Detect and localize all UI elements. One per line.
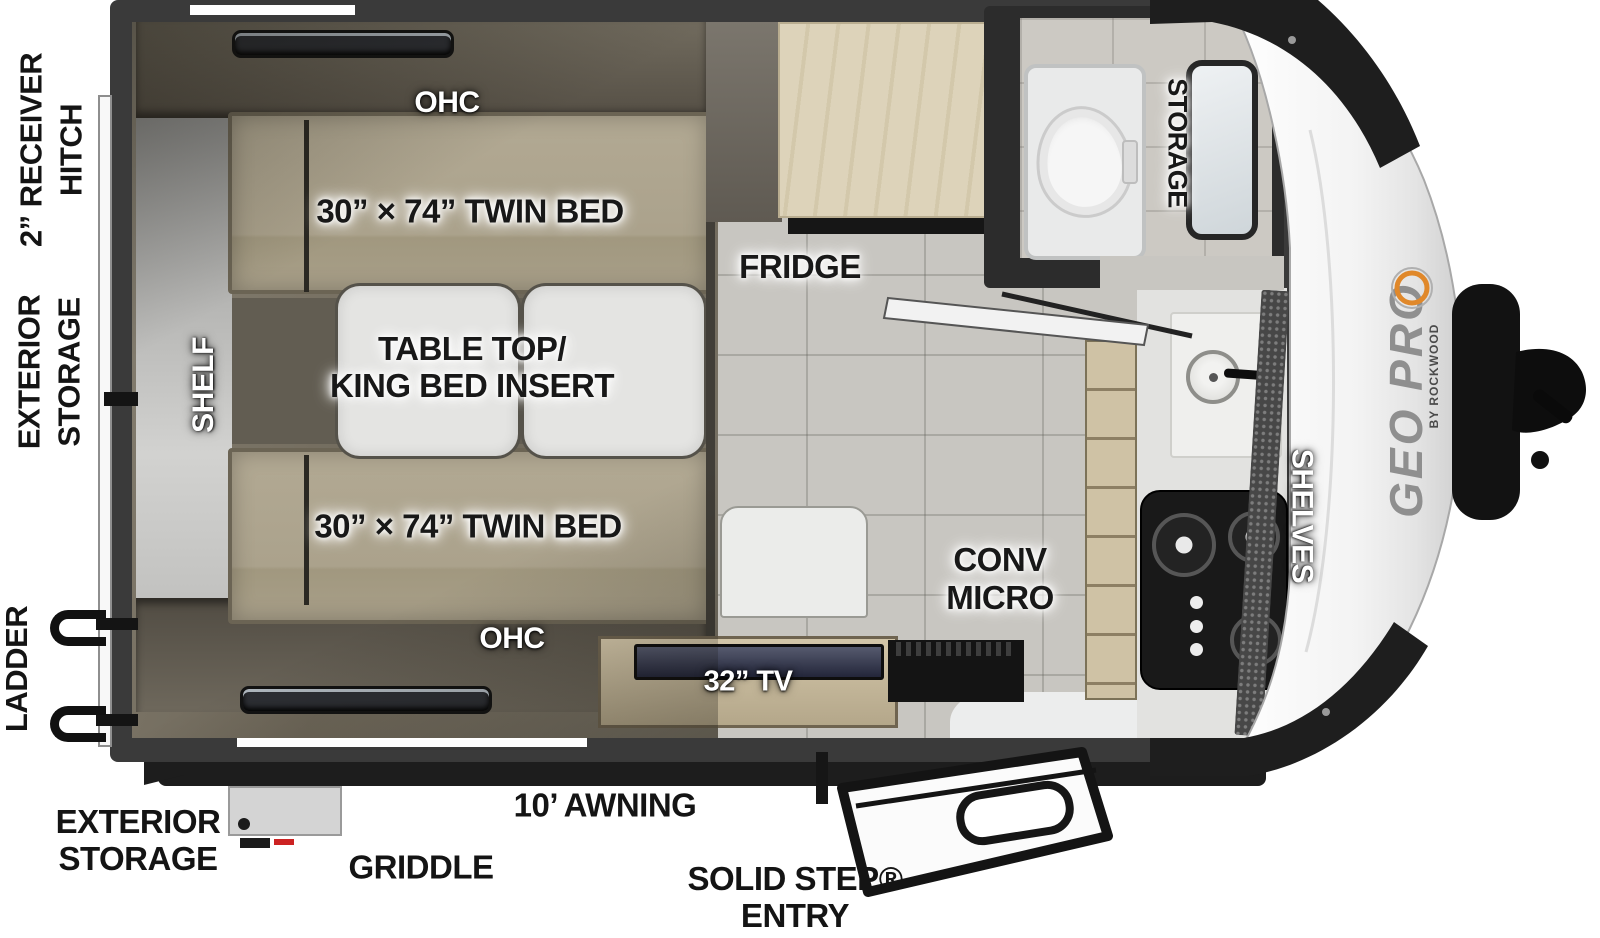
bathroom-doorway <box>1100 256 1284 290</box>
label-table-line1: TABLE TOP/ <box>330 331 614 368</box>
label-conv-micro: CONV MICRO <box>946 541 1054 617</box>
step-handle-slot <box>957 782 1073 845</box>
logo-orange-ring <box>1397 273 1427 303</box>
hitch-assembly <box>1452 284 1586 520</box>
cabinet-side-panel <box>706 22 782 222</box>
label-receiver-hitch: 2” RECEIVER HITCH <box>12 53 93 247</box>
cooktop-knob <box>1190 596 1203 609</box>
label-twin-bed-bottom: 30” × 74” TWIN BED <box>314 509 621 546</box>
logo-subtext: BY ROCKWOOD <box>1427 324 1441 429</box>
label-solid-step-entry: SOLID STEP® ENTRY <box>687 861 902 935</box>
label-bottom-storage-line2: STORAGE <box>56 841 221 878</box>
label-hitch-line2: HITCH <box>52 53 92 247</box>
geo-pro-logo: GEO PRO BY ROCKWOOD <box>1380 268 1441 518</box>
label-twin-bed-top: 30” × 74” TWIN BED <box>316 194 623 231</box>
roof-vent-icon <box>240 686 492 714</box>
label-table-line2: KING BED INSERT <box>330 368 614 405</box>
label-hitch-line1: 2” RECEIVER <box>12 53 52 247</box>
ladder-bracket <box>104 392 138 406</box>
griddle-mount <box>240 838 270 848</box>
front-storage-door <box>1186 60 1258 240</box>
griddle-igniter <box>274 839 294 845</box>
label-ohc-bottom: OHC <box>479 622 544 657</box>
logo-outer-ring <box>1392 268 1432 308</box>
toilet-hinge <box>1122 140 1138 184</box>
label-griddle: GRIDDLE <box>349 850 494 887</box>
griddle-knob <box>238 818 250 830</box>
stowed-table <box>720 506 868 618</box>
top-wall-window <box>190 5 355 15</box>
label-conv-line1: CONV <box>946 541 1054 579</box>
label-shelf: SHELF <box>187 337 222 433</box>
nose-screw <box>1288 36 1296 44</box>
ladder-hook-icon <box>50 610 106 646</box>
label-bottom-storage-line1: EXTERIOR <box>56 804 221 841</box>
ladder-hook-icon <box>50 706 106 742</box>
fridge-vent-slot <box>788 218 992 234</box>
label-exterior-storage-side: EXTERIOR STORAGE <box>10 295 91 449</box>
ladder-rail <box>98 95 112 747</box>
cooktop-knob <box>1190 643 1203 656</box>
table-post <box>304 120 309 292</box>
fridge-cabinet <box>778 22 990 218</box>
label-front-storage: STORAGE <box>1161 78 1192 208</box>
rv-floorplan-canvas: GEO PRO BY ROCKWOOD OHC 30” × 74” TWIN B… <box>0 0 1600 938</box>
nose-screw <box>1322 708 1330 716</box>
sink-drain <box>1209 373 1218 382</box>
label-entry-line2: ENTRY <box>687 898 902 935</box>
burner-icon <box>1152 513 1216 577</box>
label-awning: 10’ AWNING <box>514 788 697 825</box>
label-ext-storage-line1: EXTERIOR <box>10 295 50 449</box>
label-ladder: LADDER <box>0 606 37 732</box>
kitchen-base-cabinet <box>1085 340 1137 700</box>
roof-vent-icon <box>232 30 454 58</box>
furnace-fins <box>896 642 1016 656</box>
cooktop-knob <box>1190 620 1203 633</box>
table-post <box>304 455 309 605</box>
label-ext-storage-line2: STORAGE <box>50 295 90 449</box>
label-table-king: TABLE TOP/ KING BED INSERT <box>330 331 614 405</box>
label-tv: 32” TV <box>704 665 793 698</box>
label-fridge: FRIDGE <box>739 248 861 286</box>
label-conv-line2: MICRO <box>946 579 1054 617</box>
label-shelves: SHELVES <box>1284 449 1319 583</box>
label-ohc-top: OHC <box>414 86 479 121</box>
label-entry-line1: SOLID STEP® <box>687 861 902 898</box>
logo-text: GEO PRO <box>1380 282 1432 518</box>
label-exterior-storage-bottom: EXTERIOR STORAGE <box>56 804 221 878</box>
